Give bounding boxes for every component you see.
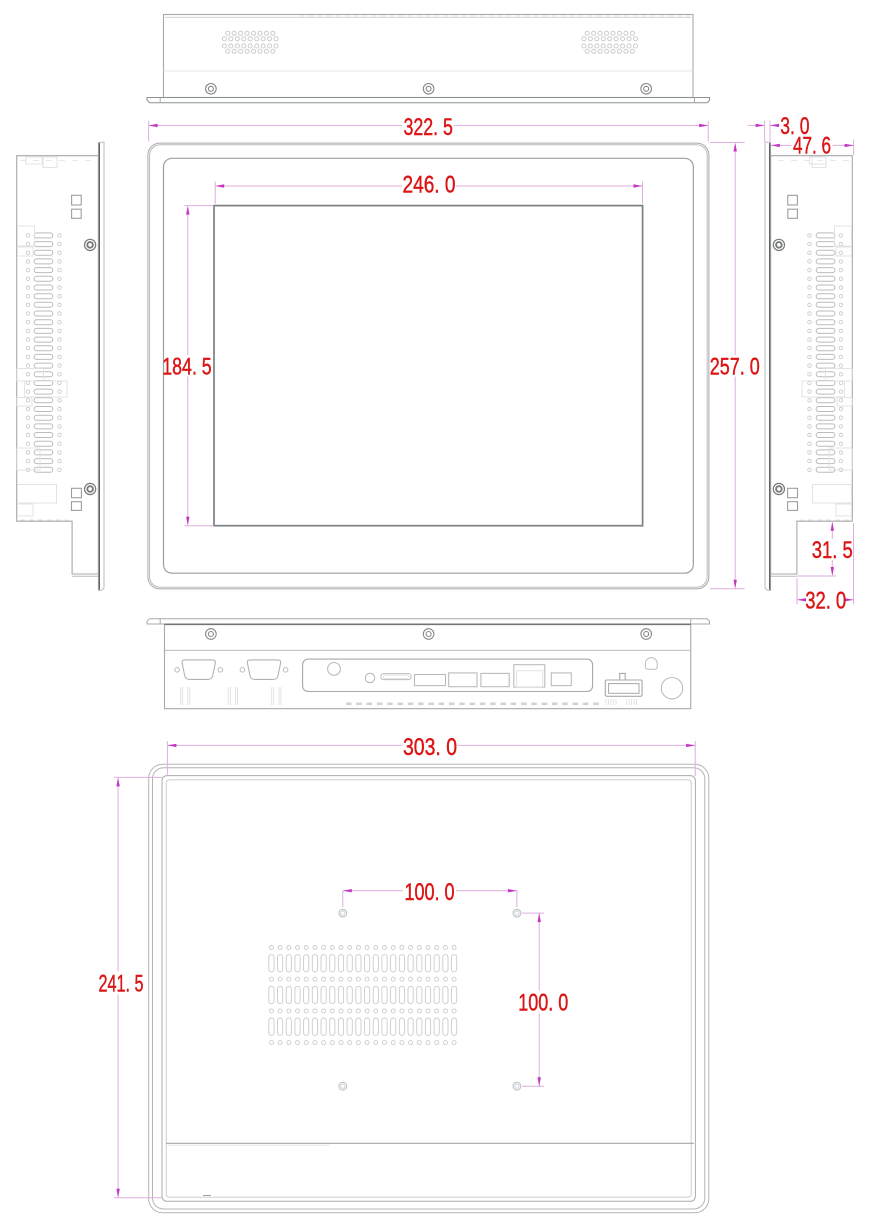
svg-text:322. 5: 322. 5 (403, 114, 453, 141)
svg-text:184. 5: 184. 5 (162, 353, 211, 380)
svg-text:47. 6: 47. 6 (793, 132, 831, 159)
svg-text:303. 0: 303. 0 (403, 734, 457, 761)
svg-text:32. 0: 32. 0 (805, 588, 846, 615)
svg-text:257. 0: 257. 0 (710, 353, 760, 380)
svg-text:100. 0: 100. 0 (405, 879, 455, 906)
svg-text:31. 5: 31. 5 (812, 537, 853, 564)
svg-text:241. 5: 241. 5 (99, 971, 144, 998)
svg-text:100. 0: 100. 0 (518, 990, 568, 1017)
svg-text:246. 0: 246. 0 (403, 172, 456, 199)
